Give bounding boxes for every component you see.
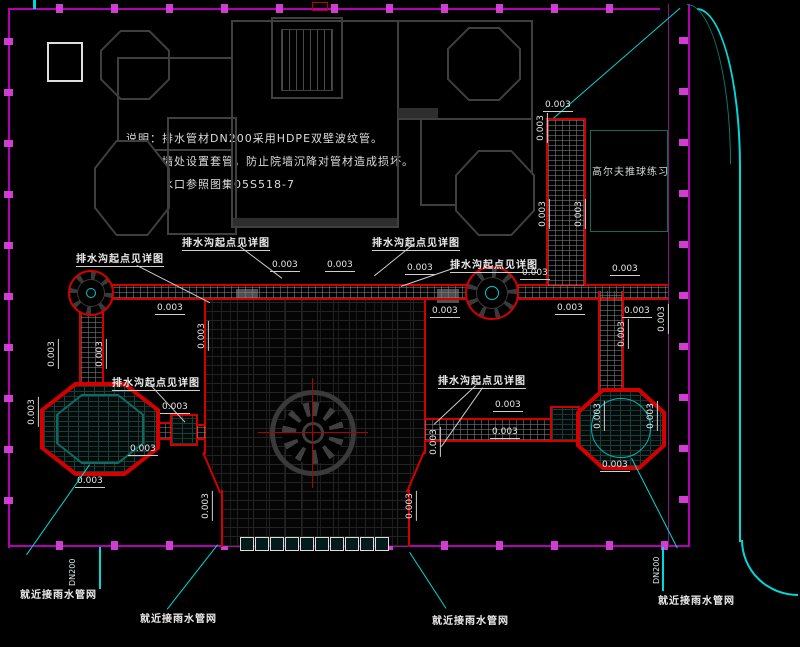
catch-basin-left — [68, 270, 114, 316]
cad-drainage-plan: 说明：排水管材DN200采用HDPE双壁波纹管。 穿墙处设置套管，防止院墙沉降对… — [0, 0, 800, 647]
survey-tick-icon — [33, 0, 36, 9]
connect-network-label: 就近接雨水管网 — [432, 612, 509, 627]
slope-label: 0.003 — [646, 401, 658, 431]
planter-square — [47, 42, 83, 82]
slope-label: 0.003 — [430, 306, 460, 318]
fence-right-line-inner — [668, 4, 669, 547]
building-bay-lower-left — [94, 140, 170, 236]
fence-top-posts — [8, 4, 660, 13]
slope-label: 0.003 — [493, 400, 523, 412]
connect-network-label: 就近接雨水管网 — [20, 586, 97, 601]
slope-label: 0.003 — [429, 427, 441, 457]
connect-network-label: 就近接雨水管网 — [140, 610, 217, 625]
pipe-leader-bc-left — [167, 544, 218, 609]
building-mid-left-block — [167, 117, 237, 235]
slope-label: 0.003 — [201, 491, 213, 521]
fence-right-posts — [679, 4, 688, 547]
slope-label: 0.003 — [27, 397, 39, 427]
slope-label: 0.003 — [490, 427, 520, 439]
pipe-dn-label: DN200 — [652, 557, 661, 584]
fountain-inner-circle — [302, 422, 324, 444]
slope-label: 0.003 — [405, 263, 435, 275]
slope-label: 0.003 — [574, 199, 586, 229]
detail-callout: 排水沟起点见详图 — [112, 374, 200, 391]
golf-area-label: 高尔夫推球练习 — [592, 163, 669, 178]
paving-steps-row — [240, 537, 389, 551]
slope-label: 0.003 — [128, 444, 158, 456]
pipe-leader-br — [631, 458, 678, 548]
detail-callout: 排水沟起点见详图 — [182, 234, 270, 251]
slope-label: 0.003 — [555, 303, 585, 315]
pipe-vertical-bl — [99, 547, 101, 589]
slope-label: 0.003 — [617, 319, 629, 349]
pipe-leader-bc-right — [409, 552, 446, 609]
detail-callout: 排水沟起点见详图 — [438, 372, 526, 389]
slope-label: 0.003 — [325, 260, 355, 272]
detail-callout: 排水沟起点见详图 — [372, 234, 460, 251]
detail-callout: 排水沟起点见详图 — [76, 250, 164, 267]
slope-label: 0.003 — [155, 303, 185, 315]
slope-label: 0.003 — [600, 460, 630, 472]
fountain-crosshair-v — [312, 378, 313, 488]
building-bay-lower-right — [455, 150, 535, 236]
drain-node-square-right — [550, 406, 580, 442]
slope-label: 0.003 — [543, 100, 573, 112]
golf-area-boundary — [590, 130, 668, 232]
slope-label: 0.003 — [593, 401, 605, 431]
slope-label: 0.003 — [270, 260, 300, 272]
road-edge-vertical — [739, 166, 741, 542]
catch-basin-right — [465, 266, 519, 320]
pipe-vertical-br — [662, 547, 664, 591]
slope-label: 0.003 — [536, 113, 548, 143]
building-stairs-icon — [281, 29, 333, 91]
slope-label: 0.003 — [47, 339, 59, 369]
slope-label: 0.003 — [95, 339, 107, 369]
slope-label: 0.003 — [538, 199, 550, 229]
drain-node-square-left — [170, 414, 198, 446]
drain-stub-left-b — [197, 424, 206, 440]
slope-label: 0.003 — [622, 306, 652, 318]
road-curve-bottom — [741, 484, 800, 596]
fountain-crosshair-h — [258, 432, 368, 433]
building-north-mark — [312, 2, 328, 11]
building-wall-fill-2 — [398, 108, 438, 118]
slope-label: 0.003 — [405, 491, 417, 521]
plaza-drain-left-lower — [221, 490, 223, 547]
slope-label: 0.003 — [657, 304, 669, 334]
slope-label: 0.003 — [610, 264, 640, 276]
slope-label: 0.003 — [520, 268, 550, 280]
slope-label: 0.003 — [75, 476, 105, 488]
fence-left-posts — [4, 8, 13, 548]
pipe-dn-label: DN200 — [68, 559, 77, 586]
connect-network-label: 就近接雨水管网 — [658, 592, 735, 607]
slope-label: 0.003 — [160, 402, 190, 414]
building-wall-fill-1 — [233, 218, 397, 226]
building-bay-top-right — [447, 27, 521, 101]
slope-label: 0.003 — [197, 321, 209, 351]
